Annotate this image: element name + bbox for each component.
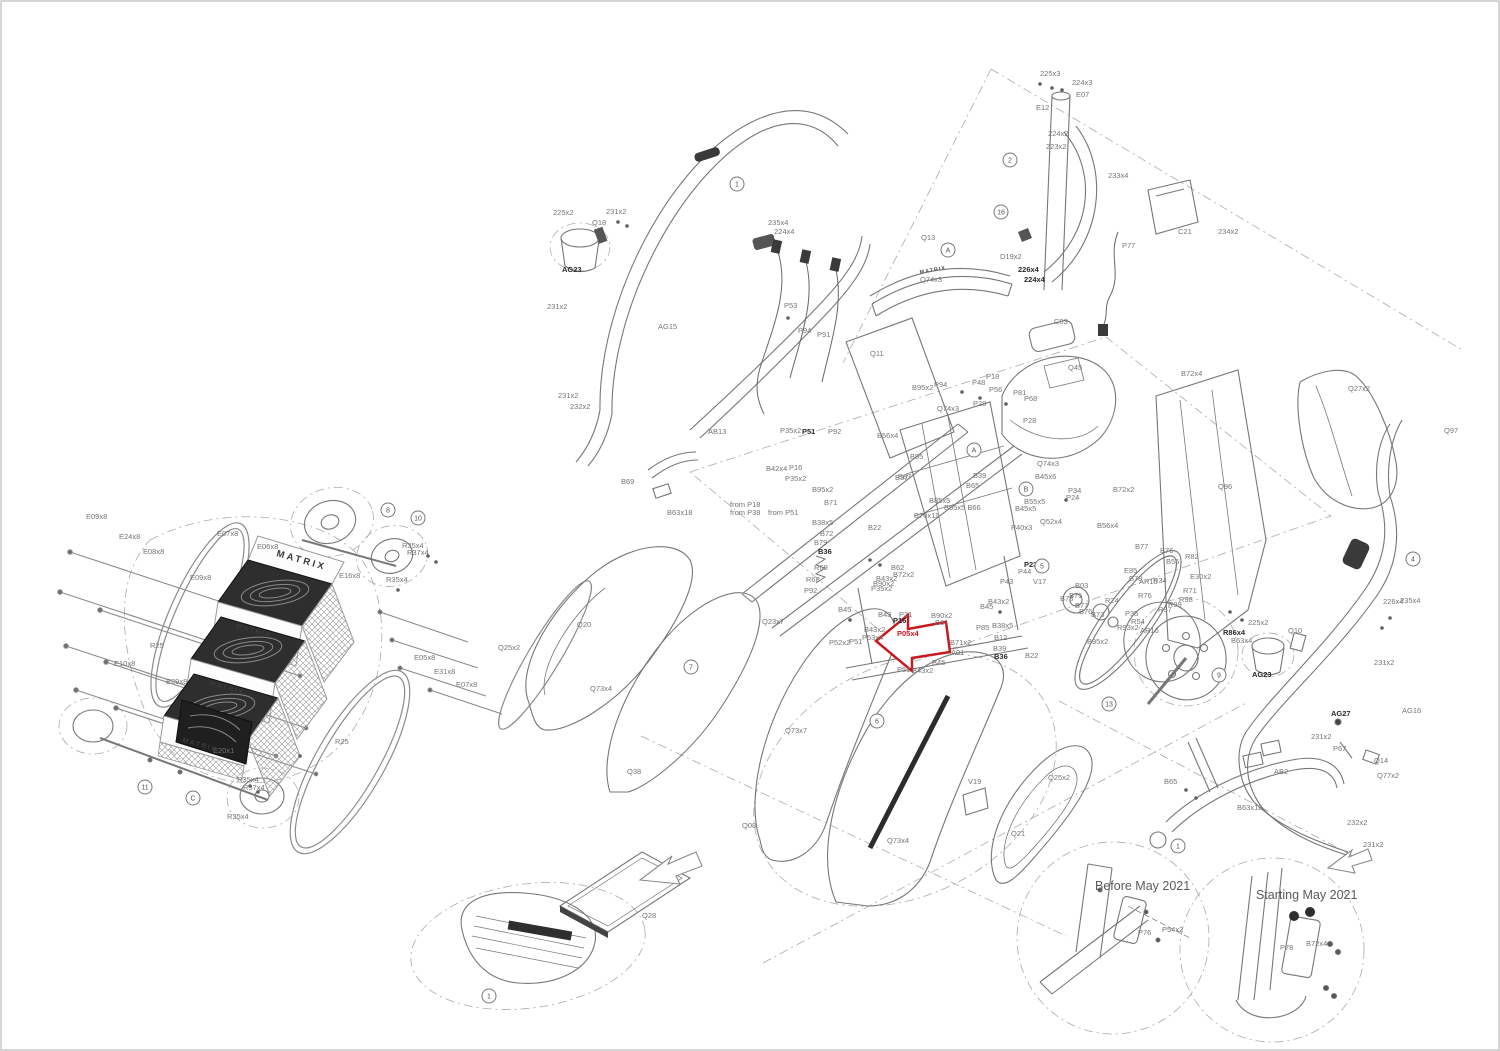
- part-label: P44: [1018, 567, 1031, 576]
- exploded-parts-diagram: Matrix stair climber - exploded parts di…: [0, 0, 1500, 1051]
- part-label: B95x2: [1087, 637, 1108, 646]
- part-label: Q52x4: [1040, 517, 1062, 526]
- part-label: 233x4: [1108, 171, 1128, 180]
- part-label: Q11: [870, 349, 884, 358]
- part-label: P77: [1122, 241, 1135, 250]
- part-label: B22: [868, 523, 881, 532]
- part-label: E16x8: [339, 571, 360, 580]
- part-label: 225x2: [1248, 618, 1268, 627]
- part-label: R93x2: [1117, 623, 1139, 632]
- part-label: AG23: [1252, 670, 1272, 679]
- part-label: B38x5: [812, 518, 833, 527]
- part-label: C03: [1054, 317, 1068, 326]
- callout-number: 8: [386, 507, 390, 514]
- part-label: Q08: [742, 821, 756, 830]
- part-label: 235x4: [1400, 596, 1420, 605]
- part-label: R25: [150, 641, 164, 650]
- callout-number: 16: [997, 209, 1005, 216]
- part-label: E30x2: [1190, 572, 1211, 581]
- part-label: P51: [849, 637, 862, 646]
- part-label: P91: [817, 330, 830, 339]
- part-label: B22: [1025, 651, 1038, 660]
- part-label: Q97: [1444, 426, 1458, 435]
- part-label: R37x4: [407, 548, 429, 557]
- part-label: P16: [893, 616, 906, 625]
- part-label: P16: [789, 463, 802, 472]
- part-label: Q13: [921, 233, 935, 242]
- part-label: B95x2: [812, 485, 833, 494]
- part-label: Q10: [1288, 626, 1302, 635]
- part-label: Q74x3: [937, 404, 959, 413]
- callout-number: 4: [1411, 556, 1415, 563]
- part-label: P68: [1024, 394, 1037, 403]
- callout-number: 5: [1040, 563, 1044, 570]
- part-label: AG15: [658, 322, 677, 331]
- part-label: 231x2: [1374, 658, 1394, 667]
- part-label: E07x8: [456, 680, 477, 689]
- part-label: E12: [1036, 103, 1049, 112]
- part-label: V17: [1033, 577, 1046, 586]
- part-label: 225x2: [553, 208, 573, 217]
- part-label: B55x5 B66: [944, 503, 981, 512]
- part-label: Q25x2: [498, 643, 520, 652]
- part-label: R25: [335, 737, 349, 746]
- callout-number: B: [1024, 486, 1029, 493]
- part-label: 223x2: [1046, 142, 1066, 151]
- part-label: R76: [1138, 591, 1152, 600]
- part-label: AG23: [562, 265, 582, 274]
- part-label: E09x8: [86, 512, 107, 521]
- part-label: from P38: [730, 508, 760, 517]
- part-label: P28: [1023, 416, 1036, 425]
- callout-number: A: [946, 247, 951, 254]
- callout-number: 13: [1105, 701, 1113, 708]
- part-label: E07: [1076, 90, 1089, 99]
- part-label: R97: [1158, 605, 1172, 614]
- part-label: B95x2: [912, 383, 933, 392]
- part-label: 231x2: [606, 207, 626, 216]
- part-label: P51: [802, 427, 815, 436]
- part-label: B55: [1166, 557, 1179, 566]
- part-label: Q74x3: [920, 275, 942, 284]
- part-label: 224x3: [1072, 78, 1092, 87]
- part-label: Q21: [1011, 829, 1025, 838]
- part-label: Q45: [1068, 363, 1082, 372]
- part-label: P52x2: [829, 638, 850, 647]
- part-label: C21: [1178, 227, 1192, 236]
- part-label: Before May 2021: [1095, 879, 1190, 893]
- part-label: Q74x3: [1037, 459, 1059, 468]
- part-label: P54x2: [1162, 925, 1183, 934]
- part-label: B43x2: [912, 666, 933, 675]
- part-label: P76: [1138, 928, 1151, 937]
- part-label: 231x2: [1311, 732, 1331, 741]
- part-label: B95: [910, 452, 923, 461]
- callout-number: 1: [735, 181, 739, 188]
- part-label: P94: [798, 326, 811, 335]
- part-label: 234x2: [1218, 227, 1238, 236]
- part-label: E31x8: [434, 667, 455, 676]
- part-label: AR16: [1140, 626, 1159, 635]
- part-label: B36: [994, 652, 1008, 661]
- part-label: P85: [976, 623, 989, 632]
- part-label: E05x8: [414, 653, 435, 662]
- part-label: B36: [818, 547, 832, 556]
- part-label: E08x8: [143, 547, 164, 556]
- part-label: 224x2: [1048, 129, 1068, 138]
- part-label: P18: [986, 372, 999, 381]
- part-label: B72x2: [1113, 485, 1134, 494]
- part-label: P94: [934, 380, 947, 389]
- part-label: B43: [878, 610, 891, 619]
- part-label: P35x2: [780, 426, 801, 435]
- part-label: B72x4: [1181, 369, 1202, 378]
- part-label: P53: [784, 301, 797, 310]
- part-label: Q73x4: [887, 836, 909, 845]
- callout-number: 9: [1217, 672, 1221, 679]
- part-label: B87: [898, 472, 911, 481]
- part-label: B70x11: [914, 511, 939, 520]
- part-label: B56x4: [877, 431, 898, 440]
- part-label: 232x2: [570, 402, 590, 411]
- part-label: B63x4: [1231, 636, 1252, 645]
- part-label: R35x4: [227, 812, 249, 821]
- callout-number: 2: [1008, 157, 1012, 164]
- part-label: B65: [966, 481, 979, 490]
- part-label: P40x3: [1011, 523, 1032, 532]
- part-label: P51: [897, 665, 910, 674]
- part-label: 224x4: [774, 227, 794, 236]
- part-label: Q14: [1374, 756, 1388, 765]
- part-label: E06x8: [257, 542, 278, 551]
- part-label: 231x2: [558, 391, 578, 400]
- part-label: Q73x4: [590, 684, 612, 693]
- part-label: B45: [980, 602, 993, 611]
- part-label: B03: [1075, 581, 1088, 590]
- part-label: Q27x2: [1348, 384, 1370, 393]
- part-label: 232x2: [1347, 818, 1367, 827]
- part-label: E29x8: [166, 677, 187, 686]
- part-label: from P51: [768, 508, 798, 517]
- part-label: AG27: [1331, 709, 1351, 718]
- part-label: Q38: [627, 767, 641, 776]
- callout-number: A: [972, 447, 977, 454]
- diagram-page: Matrix stair climber - exploded parts di…: [0, 0, 1500, 1051]
- part-label: B71x2: [950, 638, 971, 647]
- part-label: Q77x2: [1377, 771, 1399, 780]
- part-label: P67: [1333, 744, 1346, 753]
- part-label: B39: [973, 471, 986, 480]
- callout-number: 10: [414, 515, 422, 522]
- part-label: P35x2: [785, 474, 806, 483]
- part-label: R71: [1183, 586, 1197, 595]
- part-label: A01: [951, 648, 964, 657]
- part-label: E07x8: [217, 529, 238, 538]
- part-label: B65: [1164, 777, 1177, 786]
- part-label: B12: [994, 633, 1007, 642]
- part-label: B72x4: [1306, 939, 1327, 948]
- part-label: B45: [838, 605, 851, 614]
- callout-number: 6: [875, 718, 879, 725]
- part-label: Q23x7: [762, 617, 784, 626]
- part-label: B79: [814, 538, 827, 547]
- part-label: V19: [968, 777, 981, 786]
- part-label: Q20: [577, 620, 591, 629]
- part-label: P48: [972, 378, 985, 387]
- callout-number: 1: [1176, 843, 1180, 850]
- part-label: 231x2: [1363, 840, 1383, 849]
- part-label: B71: [824, 498, 837, 507]
- part-label: P28: [973, 399, 986, 408]
- callout-number: 11: [141, 784, 148, 791]
- part-label: B69: [621, 477, 634, 486]
- part-label: P53x4: [862, 633, 883, 642]
- part-label: 226x4: [1018, 265, 1040, 274]
- part-label: B63x18: [667, 508, 692, 517]
- part-label: AG16: [1402, 706, 1421, 715]
- part-label: P35x2: [871, 584, 892, 593]
- part-label: AB13: [708, 427, 726, 436]
- callout-number: 1: [487, 993, 491, 1000]
- part-label: 235x4: [768, 218, 788, 227]
- part-label: B72: [820, 529, 833, 538]
- part-label: 224x4: [1024, 275, 1046, 284]
- part-label: Q96: [1218, 482, 1232, 491]
- part-label: B45x5: [1015, 504, 1036, 513]
- callout-number: C: [190, 795, 195, 802]
- part-label: P43: [1000, 577, 1013, 586]
- part-label: B77: [1135, 542, 1148, 551]
- part-label: B73: [1091, 610, 1104, 619]
- part-label: 225x3: [1040, 69, 1060, 78]
- part-label: B45: [932, 658, 945, 667]
- part-label: AB2: [1274, 767, 1288, 776]
- part-label: B61: [935, 618, 948, 627]
- part-label: R24: [1105, 596, 1119, 605]
- part-label: P92: [828, 427, 841, 436]
- part-label: E09x8: [190, 573, 211, 582]
- part-label: E24x8: [119, 532, 140, 541]
- part-label: D19x2: [1000, 252, 1022, 261]
- part-label: B42x4: [766, 464, 787, 473]
- part-label: R35x4: [386, 575, 408, 584]
- part-label: P78: [1280, 943, 1293, 952]
- part-label: B45x6: [1035, 472, 1056, 481]
- part-label: B63x18: [1237, 803, 1262, 812]
- part-label: P05x4: [897, 629, 920, 638]
- part-label: B38x5: [992, 621, 1013, 630]
- part-label: E10x8: [114, 659, 135, 668]
- part-label: B56x4: [1097, 521, 1118, 530]
- part-label: B76: [1160, 546, 1173, 555]
- part-label: P92: [804, 586, 817, 595]
- part-label: Starting May 2021: [1256, 888, 1357, 902]
- part-label: P56: [989, 385, 1002, 394]
- part-label: R69: [814, 563, 828, 572]
- part-label: Q18: [592, 218, 606, 227]
- callout-number: 7: [689, 664, 693, 671]
- part-label: P24: [1066, 493, 1079, 502]
- part-label: B75: [1069, 591, 1082, 600]
- part-label: 231x2: [547, 302, 567, 311]
- part-label: Q73x7: [785, 726, 807, 735]
- part-label: Q25x2: [1048, 773, 1070, 782]
- part-label: Q28: [642, 911, 656, 920]
- part-label: R37x4: [243, 783, 265, 792]
- part-label: R68: [806, 575, 820, 584]
- part-label: R82: [1185, 552, 1199, 561]
- part-label: R34: [1153, 576, 1167, 585]
